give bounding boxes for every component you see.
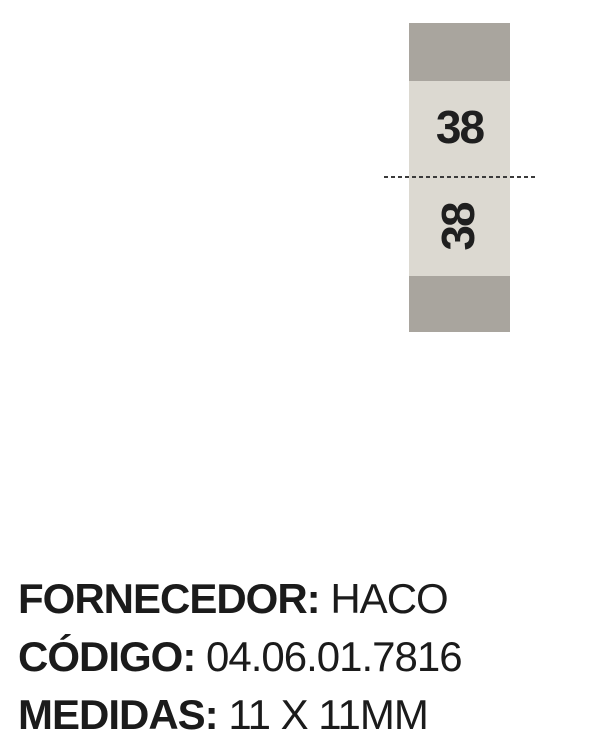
- info-row-medidas: MEDIDAS: 11 X 11MM: [18, 686, 462, 744]
- fornecedor-value: HACO: [330, 575, 447, 622]
- tag-top-band: [409, 23, 510, 81]
- codigo-value: 04.06.01.7816: [206, 633, 462, 680]
- page: 38 38 FORNECEDOR: HACO CÓDIGO: 04.06.01.…: [0, 0, 600, 744]
- tag-size-front: 38: [409, 104, 510, 150]
- medidas-label: MEDIDAS:: [18, 691, 218, 738]
- fornecedor-label: FORNECEDOR:: [18, 575, 320, 622]
- product-info: FORNECEDOR: HACO CÓDIGO: 04.06.01.7816 M…: [18, 570, 462, 744]
- medidas-value: 11 X 11MM: [228, 691, 428, 738]
- info-row-fornecedor: FORNECEDOR: HACO: [18, 570, 462, 628]
- tag-size-back-rotated: 38: [435, 203, 481, 250]
- info-row-codigo: CÓDIGO: 04.06.01.7816: [18, 628, 462, 686]
- codigo-label: CÓDIGO:: [18, 633, 195, 680]
- tag-bottom-band: [409, 276, 510, 332]
- fold-dashed-line: [384, 176, 536, 178]
